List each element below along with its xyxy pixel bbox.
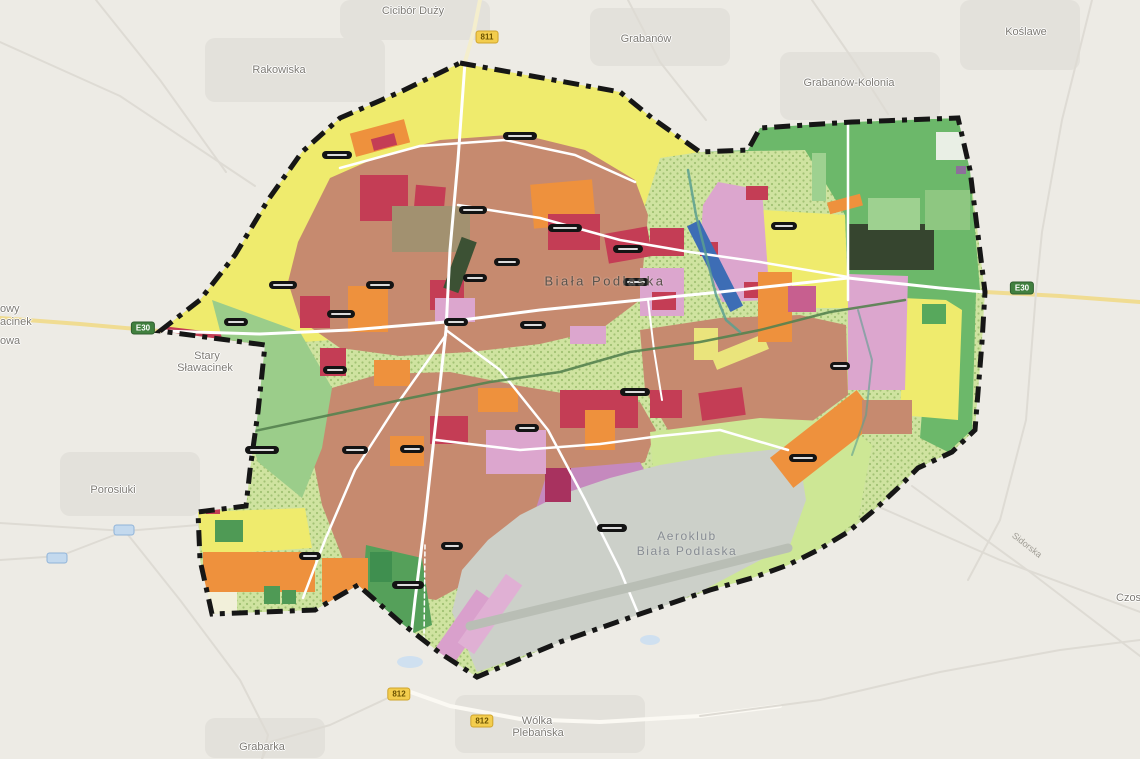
zone-code-pill	[620, 388, 650, 396]
zone-code-pill	[515, 424, 539, 432]
zone-patch	[264, 586, 280, 604]
zone-code-pill	[299, 552, 321, 560]
zone-patch	[370, 552, 392, 582]
zone-patch	[650, 228, 684, 256]
zone-code-pill	[548, 224, 582, 232]
zone-code-pill	[245, 446, 279, 454]
builtup-area	[340, 0, 490, 40]
zone-code-pill	[323, 366, 347, 374]
zone-code-pill	[520, 321, 546, 329]
zone-code-pill	[392, 581, 424, 589]
zone-patch	[570, 326, 606, 344]
zone-patch	[956, 166, 966, 174]
zone-code-pill	[327, 310, 355, 318]
zone-patch	[215, 520, 243, 542]
zone-pink-east	[848, 274, 908, 390]
airfield-label-line1: Aeroklub	[637, 529, 737, 544]
zone-patch	[348, 286, 388, 332]
zone-code-pill	[224, 318, 248, 326]
zone-code-pill	[269, 281, 297, 289]
road-badge-E30: E30	[1010, 282, 1034, 295]
zone-code-pill	[771, 222, 797, 230]
road-badge-811: 811	[476, 31, 499, 44]
airfield-label: Aeroklub Biała Podlaska	[637, 529, 737, 559]
builtup-area	[590, 8, 730, 66]
zone-patch	[862, 400, 912, 434]
zone-code-pill	[400, 445, 424, 453]
road-badge-E30: E30	[131, 322, 155, 335]
zone-code-pill	[503, 132, 537, 140]
zone-patch	[392, 206, 470, 252]
zone-patch	[652, 292, 676, 310]
zone-code-pill	[322, 151, 352, 159]
builtup-area	[780, 52, 940, 120]
zone-patch	[812, 153, 826, 201]
pond	[640, 635, 660, 645]
zone-patch	[374, 360, 410, 386]
road-badge-812: 812	[387, 688, 410, 701]
builtup-area	[60, 452, 200, 516]
zone-patch	[925, 190, 970, 230]
mini-road-badge	[114, 525, 135, 536]
city-label: Biała Podlaska	[545, 274, 666, 289]
zone-patch	[478, 388, 518, 412]
zone-patch	[868, 198, 920, 230]
zone-code-pill	[342, 446, 368, 454]
zone-patch	[486, 430, 546, 474]
zone-code-pill	[613, 245, 643, 253]
zone-code-pill	[441, 542, 463, 550]
zone-patch	[203, 552, 315, 592]
zone-patch	[650, 390, 682, 418]
pond	[397, 656, 423, 668]
zone-code-pill	[597, 524, 627, 532]
zone-patch	[545, 468, 571, 502]
builtup-area	[960, 0, 1080, 70]
zone-code-pill	[459, 206, 487, 214]
zone-patch	[848, 224, 934, 270]
mini-road-badge	[47, 553, 68, 564]
zone-patch	[922, 304, 946, 324]
zone-patch	[758, 272, 792, 342]
zone-patch	[300, 296, 330, 328]
zone-code-pill	[366, 281, 394, 289]
zone-patch	[282, 590, 296, 604]
map-graphics	[0, 0, 1140, 759]
builtup-area	[205, 38, 385, 102]
road-badge-812: 812	[470, 715, 493, 728]
zone-code-pill	[494, 258, 520, 266]
zone-code-pill	[789, 454, 817, 462]
map-canvas[interactable]: Cicibór DużyRakowiskaGrabanówKoślaweGrab…	[0, 0, 1140, 759]
zone-patch	[788, 286, 816, 312]
airfield-label-line2: Biała Podlaska	[637, 544, 737, 559]
zone-code-pill	[463, 274, 487, 282]
zone-code-pill	[444, 318, 468, 326]
zone-code-pill	[830, 362, 850, 370]
zone-patch	[746, 186, 768, 200]
